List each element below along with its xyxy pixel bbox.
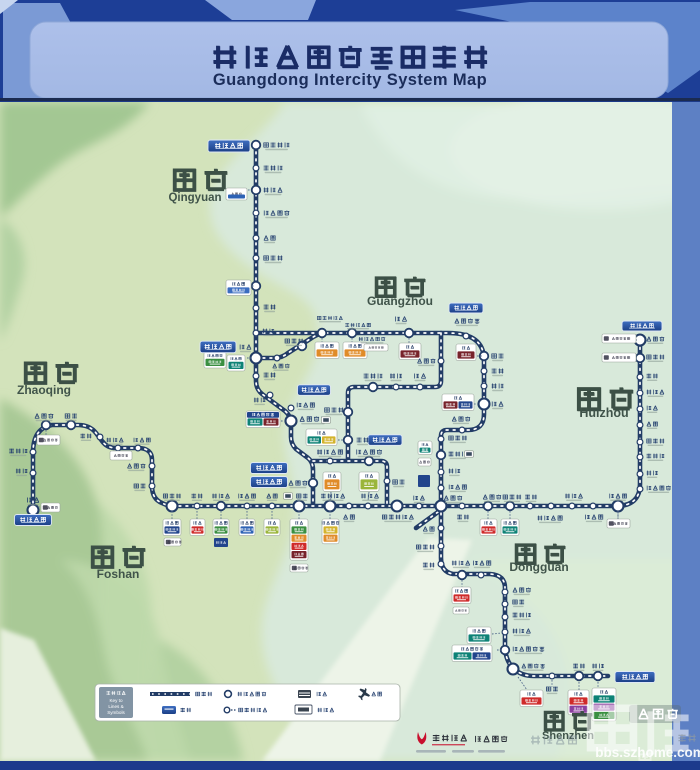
- svg-text:Dongguan: Dongguan: [509, 560, 568, 574]
- svg-text:Zhaoqing: Zhaoqing: [17, 383, 71, 397]
- svg-text:Key to: Key to: [109, 698, 122, 703]
- svg-text:Guangzhou: Guangzhou: [367, 294, 433, 308]
- svg-text:Symbols: Symbols: [107, 710, 125, 715]
- svg-text:Guangdong Intercity System Map: Guangdong Intercity System Map: [213, 71, 487, 89]
- svg-text:bbs.szhome.com: bbs.szhome.com: [595, 745, 700, 760]
- svg-text:Qingyuan: Qingyuan: [168, 192, 221, 204]
- svg-text:Huizhou: Huizhou: [579, 406, 628, 420]
- svg-text:Foshan: Foshan: [97, 567, 140, 581]
- svg-text:Lines &: Lines &: [108, 704, 123, 709]
